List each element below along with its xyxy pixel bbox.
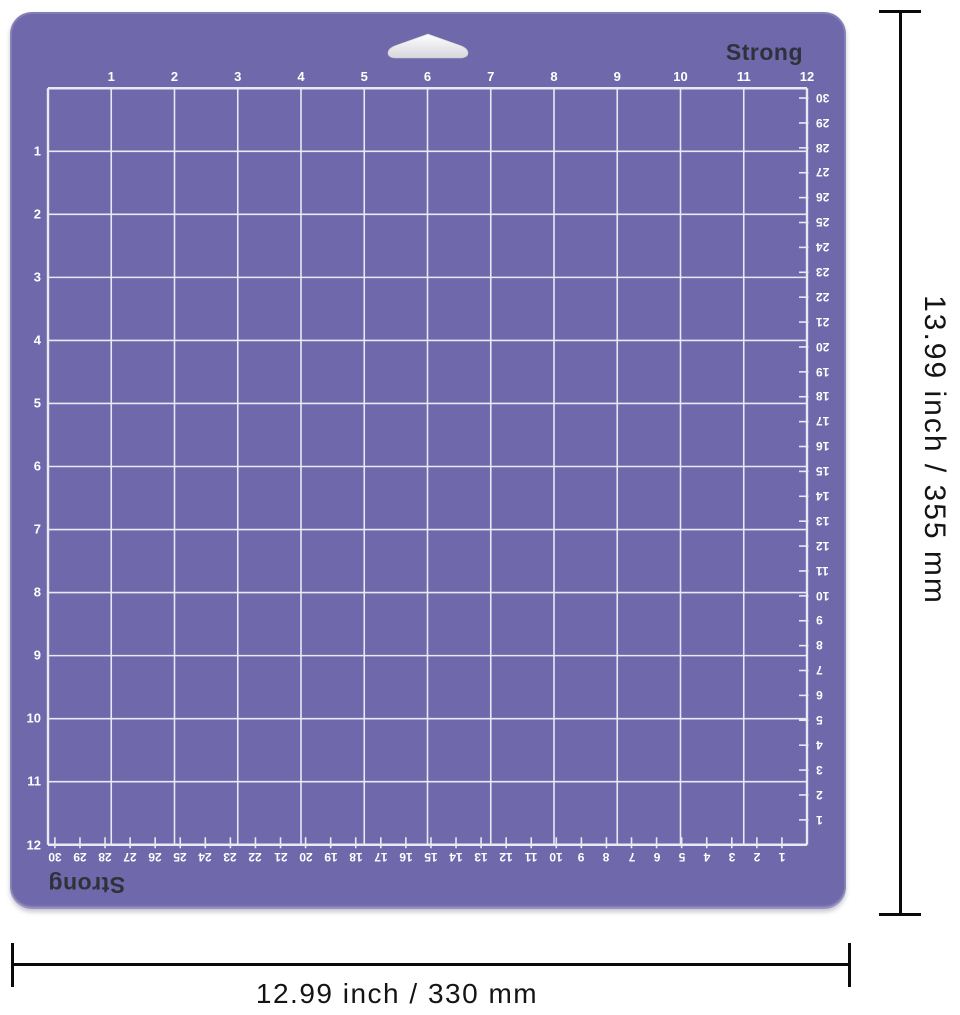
cm-label-right: 11 (816, 565, 829, 577)
height-dimension-label: 13.99 inch / 355 mm (919, 295, 949, 605)
hanger-notch (387, 33, 469, 59)
cm-label-right: 12 (816, 540, 829, 552)
cm-label-bottom: 29 (73, 851, 86, 863)
cm-label-bottom: 2 (754, 851, 761, 863)
cm-label-bottom: 8 (603, 851, 610, 863)
brand-label-top: Strong (726, 41, 803, 64)
cm-label-right: 1 (816, 814, 823, 826)
cm-label-bottom: 28 (98, 851, 111, 863)
cm-label-bottom: 22 (249, 851, 262, 863)
inch-label-left: 3 (34, 271, 41, 284)
inch-label-top: 10 (673, 70, 687, 83)
cm-label-right: 18 (816, 390, 829, 402)
cm-label-right: 15 (816, 465, 829, 477)
cm-label-right: 2 (816, 789, 823, 801)
cm-label-right: 16 (816, 440, 829, 452)
hanger-notch-shape (388, 34, 468, 58)
measurement-grid: 1234567891011121234567891011123029282726… (48, 88, 807, 845)
cm-label-right: 19 (816, 366, 829, 378)
width-dimension-label: 12.99 inch / 330 mm (256, 980, 538, 1008)
cm-label-bottom: 12 (499, 851, 512, 863)
cm-label-right: 23 (816, 266, 829, 278)
inch-label-left: 5 (34, 397, 41, 410)
cm-label-bottom: 3 (728, 851, 735, 863)
inch-label-top: 6 (424, 70, 431, 83)
cm-label-bottom: 30 (48, 851, 61, 863)
inch-label-top: 3 (234, 70, 241, 83)
width-dimension-line (11, 963, 851, 966)
cm-label-right: 7 (816, 664, 823, 676)
cm-label-right: 10 (816, 590, 829, 602)
cm-label-right: 21 (816, 316, 829, 328)
cm-label-bottom: 21 (274, 851, 287, 863)
cm-label-right: 28 (816, 142, 829, 154)
height-dimension-line (899, 10, 902, 916)
cm-label-right: 13 (816, 515, 829, 527)
cm-label-bottom: 5 (678, 851, 685, 863)
cm-label-right: 26 (816, 191, 829, 203)
cm-label-bottom: 18 (349, 851, 362, 863)
cm-label-bottom: 6 (653, 851, 660, 863)
cm-label-bottom: 26 (148, 851, 161, 863)
cm-label-right: 5 (816, 714, 823, 726)
grid-lines (48, 88, 807, 845)
inch-label-top: 5 (361, 70, 368, 83)
inch-label-left: 8 (34, 586, 41, 599)
inch-label-top: 11 (737, 70, 751, 83)
inch-label-top: 1 (108, 70, 115, 83)
cm-label-right: 14 (816, 490, 829, 502)
cm-label-bottom: 11 (525, 851, 538, 863)
cm-label-right: 24 (816, 241, 829, 253)
brand-label-bottom: Strong (48, 873, 125, 896)
inch-label-left: 4 (34, 334, 41, 347)
cm-label-bottom: 15 (424, 851, 437, 863)
cm-label-right: 27 (816, 166, 829, 178)
cm-label-bottom: 27 (123, 851, 136, 863)
cm-label-bottom: 14 (449, 851, 462, 863)
product-canvas: Strong Strong 12345678910111212345678910… (0, 0, 960, 1015)
inch-label-top: 8 (550, 70, 557, 83)
cm-label-right: 6 (816, 689, 823, 701)
inch-label-top: 4 (297, 70, 304, 83)
width-dimension-cap-right (848, 943, 851, 987)
cm-label-bottom: 16 (399, 851, 412, 863)
cm-label-bottom: 7 (628, 851, 635, 863)
inch-label-top: 9 (614, 70, 621, 83)
cm-label-bottom: 13 (474, 851, 487, 863)
cm-label-bottom: 9 (578, 851, 585, 863)
cm-label-right: 29 (816, 117, 829, 129)
height-dimension-cap-bottom (879, 913, 921, 916)
cm-label-right: 30 (816, 92, 829, 104)
height-dimension-cap-top (879, 10, 921, 13)
cm-label-right: 3 (816, 764, 823, 776)
cm-label-right: 20 (816, 341, 829, 353)
inch-label-left: 6 (34, 460, 41, 473)
inch-label-left: 2 (34, 208, 41, 221)
inch-label-left: 7 (34, 523, 41, 536)
cm-label-bottom: 24 (199, 851, 212, 863)
inch-label-left: 10 (27, 712, 41, 725)
cm-label-bottom: 23 (224, 851, 237, 863)
cm-label-bottom: 4 (703, 851, 710, 863)
cm-label-right: 9 (816, 614, 823, 626)
cm-label-bottom: 10 (550, 851, 563, 863)
cm-label-right: 22 (816, 291, 829, 303)
inch-label-left: 9 (34, 649, 41, 662)
cm-label-bottom: 20 (299, 851, 312, 863)
cm-label-right: 25 (816, 216, 829, 228)
cm-label-bottom: 19 (324, 851, 337, 863)
inch-label-left: 12 (27, 838, 41, 851)
cm-label-bottom: 25 (174, 851, 187, 863)
cm-label-right: 8 (816, 639, 823, 651)
inch-label-top: 7 (487, 70, 494, 83)
width-dimension-cap-left (11, 943, 14, 987)
inch-label-top: 12 (800, 70, 814, 83)
cm-label-bottom: 17 (374, 851, 387, 863)
cm-label-right: 4 (816, 739, 823, 751)
inch-label-left: 1 (34, 145, 41, 158)
cm-label-bottom: 1 (779, 851, 786, 863)
inch-label-top: 2 (171, 70, 178, 83)
inch-label-left: 11 (27, 775, 41, 788)
cutting-mat: Strong Strong 12345678910111212345678910… (10, 12, 846, 909)
cm-label-right: 17 (816, 415, 829, 427)
